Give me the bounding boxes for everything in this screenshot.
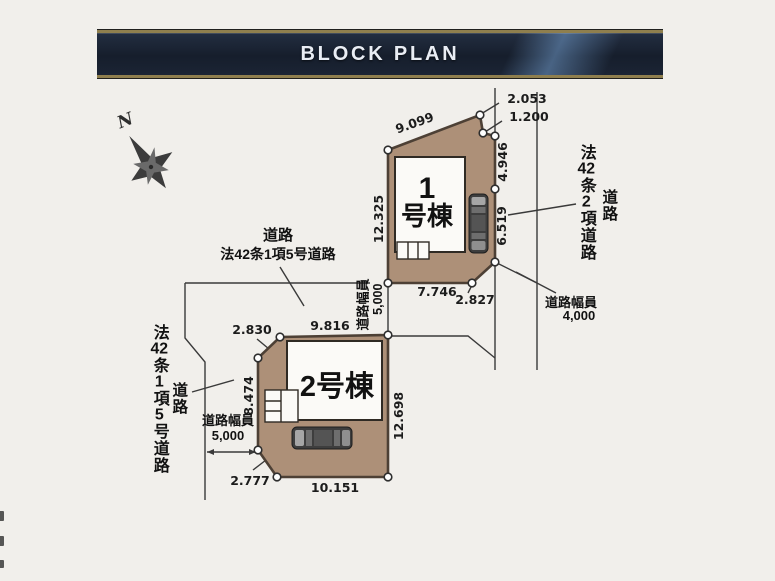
edge-fragment — [0, 536, 4, 546]
vertex-marker — [384, 473, 392, 481]
dim-lot2-cut-bottom: 2.777 — [230, 473, 270, 488]
car1-hood — [472, 197, 486, 205]
vertex-marker — [491, 258, 499, 266]
dim-lot2-right: 12.698 — [391, 392, 406, 440]
vertex-marker — [254, 446, 262, 454]
dim-lot1-right-upper: 4.946 — [495, 142, 510, 182]
leader-dim-2777 — [253, 460, 266, 470]
lot1-car-icon — [469, 194, 488, 253]
car2-roof — [314, 430, 332, 446]
lot2-car-icon — [292, 427, 352, 449]
dim-lot1-cut-b: 1.200 — [509, 109, 549, 124]
vertex-marker — [491, 132, 499, 140]
vertex-marker — [491, 185, 499, 193]
leader-mid-road — [280, 267, 304, 306]
building1-suffix: 号棟 — [394, 202, 460, 232]
car2-rear-window — [334, 430, 340, 446]
dim-lot1-left: 12.325 — [371, 195, 386, 243]
block-plan-page: BLOCK PLAN — [0, 0, 775, 581]
leader-left-road — [192, 380, 234, 392]
car1-roof — [472, 215, 486, 231]
road-line-south-of-lot1 — [390, 336, 495, 358]
edge-fragment — [0, 560, 4, 568]
car2-trunk — [342, 430, 350, 446]
vertex-marker — [479, 129, 487, 137]
vertex-marker — [273, 473, 281, 481]
mid-road-law: 法42条1項5号道路 — [203, 246, 353, 262]
car1-rear-window — [472, 233, 486, 239]
leader-right-road — [508, 204, 576, 215]
car1-windshield — [472, 207, 486, 213]
vertex-marker — [384, 331, 392, 339]
car2-windshield — [306, 430, 312, 446]
dim-lot2-bottom: 10.151 — [311, 480, 359, 495]
dim-lot2-cut-top: 2.830 — [232, 322, 272, 337]
leader-right-width — [516, 272, 556, 293]
left-road-width-value: 5,000 — [196, 429, 260, 444]
dim-lot1-cut-a: 2.053 — [507, 91, 547, 106]
dim-lot2-left: 8.474 — [241, 376, 256, 416]
mid-road-name: 道路 — [203, 227, 353, 244]
compass-rose-icon — [108, 120, 188, 202]
dim-lot1-corner: 2.827 — [455, 292, 495, 307]
dim-lot1-right-lower: 6.519 — [494, 206, 509, 246]
lot1-porch-rect — [397, 242, 429, 259]
vertex-marker — [384, 146, 392, 154]
building2-label: 2号棟 — [290, 371, 384, 404]
edge-fragment — [0, 511, 4, 521]
vertex-marker — [254, 354, 262, 362]
dim-lot1-top: 9.099 — [393, 109, 435, 136]
leader-dim-1200 — [485, 121, 502, 132]
mid-road-width-label: 道路幅員 — [357, 272, 372, 336]
right-road-law: 法42条2項道路 — [577, 144, 594, 261]
right-road-width-value: 4,000 — [546, 309, 612, 324]
mid-road-width-value: 5,000 — [371, 273, 385, 325]
right-road-name: 道路 — [600, 189, 616, 222]
car2-hood — [295, 430, 304, 446]
lot1-porch — [397, 242, 429, 259]
dim-lot2-top: 9.816 — [310, 318, 350, 333]
left-road-width-label: 道路幅員 — [196, 414, 260, 429]
vertex-marker — [476, 111, 484, 119]
site-plan-drawing: 2.053 1.200 7.746 2.827 2.830 9.816 2.77… — [0, 0, 775, 581]
vertex-marker — [384, 279, 392, 287]
width-arrow-left — [207, 449, 214, 455]
vertex-marker — [276, 333, 284, 341]
car1-trunk — [472, 241, 486, 250]
left-road-law: 法42条1項5号道路 — [150, 324, 167, 474]
dim-lot1-bottom: 7.746 — [417, 284, 457, 299]
vertex-marker — [468, 279, 476, 287]
left-road-name: 道路 — [170, 382, 186, 415]
